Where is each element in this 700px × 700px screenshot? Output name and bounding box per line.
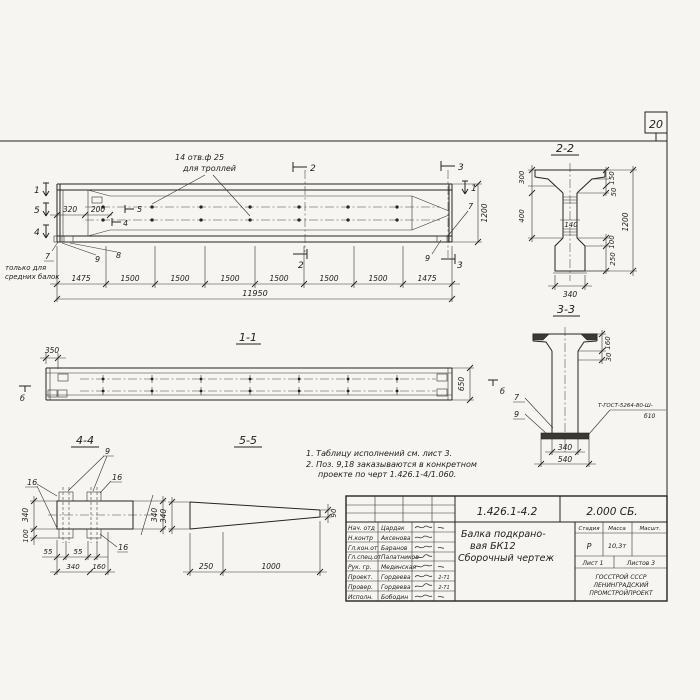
bearing-pad <box>64 236 73 242</box>
dim-140: 140 <box>564 221 578 229</box>
side-note-line2: средних балок <box>5 273 60 281</box>
marker-2-bottom: 2 <box>298 261 304 271</box>
trolley-holes <box>103 207 397 220</box>
drawing-title-line2: вая БК12 <box>470 541 516 552</box>
dim-340-33: 340 <box>558 443 573 452</box>
dim-200: 200 <box>91 205 106 214</box>
page-number: 20 <box>649 118 663 131</box>
dim-seg-7: 1500 <box>368 274 387 283</box>
dim-160: 160 <box>604 336 612 350</box>
sheets-total: Листов 3 <box>626 560 655 567</box>
cut-arrow-5-left: 5 <box>34 203 49 216</box>
dim-350: 350 <box>45 346 60 355</box>
dim-320: 320 <box>63 205 78 214</box>
staff-name-5: Мединская <box>381 564 416 571</box>
dim-250-55: 250 <box>199 562 214 571</box>
dim-seg-1: 1475 <box>71 274 90 283</box>
dim-400: 400 <box>518 209 526 223</box>
cut-label-5-inner: 5 <box>137 205 142 214</box>
cut-arrow-1-left: 1 <box>34 183 49 196</box>
note-line-2: 2. Поз. 9,18 заказываются в конкретном <box>306 460 477 469</box>
pos-16-left: 16 <box>27 478 37 487</box>
flange-bearing-mark <box>581 334 597 340</box>
cut-arrow-4-left: 4 <box>34 225 49 238</box>
pos-9-right: 9 <box>425 254 430 263</box>
staff-date-6: 2-71 <box>438 575 449 581</box>
marker-b-left: б <box>20 394 25 403</box>
dim-1200-section: 1200 <box>621 212 630 231</box>
drawing-title-line1: Балка подкрано- <box>461 529 546 540</box>
dim-total: 11950 <box>242 289 267 298</box>
note-line-3: проекте по черт 1.426.1-4/1.060. <box>318 470 456 479</box>
cut-label-1: 1 <box>34 186 40 196</box>
dim-340-bottom: 340 <box>66 563 80 571</box>
dim-540: 540 <box>558 455 573 464</box>
dim-340-left: 340 <box>21 508 30 523</box>
cut-arrow-1-right: 1 <box>462 181 477 194</box>
dim-1000: 1000 <box>261 562 280 571</box>
dim-300: 300 <box>518 170 526 184</box>
dim-340-right: 340 <box>150 508 159 523</box>
mass-header: Масса <box>608 526 626 532</box>
notes: 1. Таблицу исполнений см. лист 3. 2. Поз… <box>306 449 477 479</box>
section-2-2-title: 2-2 <box>556 142 574 155</box>
stage-header: Стадия <box>578 526 600 532</box>
dim-250: 250 <box>609 252 617 266</box>
staff-name-2: Аксенова <box>380 535 411 542</box>
hole-note-line2: для троллей <box>182 164 236 173</box>
doc-code: 2.000 СБ. <box>586 506 637 518</box>
staff-name-3: Баранов <box>381 545 408 552</box>
dim-650: 650 <box>457 377 466 392</box>
note-line-1: 1. Таблицу исполнений см. лист 3. <box>306 449 452 458</box>
bearing-pad <box>54 236 62 242</box>
staff-name-7: Гордеева <box>381 584 411 591</box>
dim-55-a: 55 <box>44 548 53 556</box>
section-2-2: 2-2 300 400 150 50 100 250 1200 140 340 <box>518 142 637 299</box>
staff-name-1: Цардак <box>381 525 405 532</box>
pos-8: 8 <box>116 251 121 260</box>
scale-header: Масшт. <box>639 526 660 532</box>
dim-seg-2: 1500 <box>120 274 139 283</box>
section-5-5-title: 5-5 <box>239 434 257 447</box>
marker-b-right: б <box>500 387 505 396</box>
weld-note-line2: б10 <box>644 413 656 420</box>
pos-9: 9 <box>95 255 100 264</box>
marker-3-bottom: 3 <box>457 261 463 271</box>
drawing-sheet: 20 14 отв.ф 25 для троллей 1 5 <box>0 0 700 700</box>
dim-55-b: 55 <box>74 548 83 556</box>
staff-name-6: Гордеева <box>381 574 411 581</box>
staff-role-3: Гл.кон.от <box>348 545 378 552</box>
dim-30: 30 <box>605 352 613 361</box>
staff-date-7: 2-71 <box>438 585 449 591</box>
dim-seg-4: 1500 <box>220 274 239 283</box>
dim-seg-8: 1475 <box>417 274 436 283</box>
org-line2: ЛЕНИНГРАДСКИЙ <box>593 582 650 589</box>
section-3-3-title: 3-3 <box>557 303 575 316</box>
dim-1200-elevation: 1200 <box>480 203 489 222</box>
dim-100-44: 100 <box>22 529 30 543</box>
sheet-no: Лист 1 <box>582 560 604 567</box>
drawing-title-line3: Сборочный чертеж <box>458 553 555 564</box>
staff-name-8: Бободин <box>381 594 408 601</box>
side-note-line1: только для <box>5 264 46 272</box>
dim-340-22: 340 <box>563 290 578 299</box>
dim-160-44: 160 <box>92 563 106 571</box>
title-block: 1.426.1-4.2 2.000 СБ. Балка подкрано- ва… <box>346 496 667 601</box>
section-1-1: 1-1 350 650 б б <box>19 331 505 403</box>
cut-label-5: 5 <box>34 206 40 216</box>
staff-role-8: Исполн. <box>348 594 373 601</box>
staff-role-1: Нач. отд <box>348 525 375 532</box>
org-line1: ГОССТРОЙ СССР <box>595 574 646 581</box>
pos-16-bottom: 16 <box>118 543 128 552</box>
section-3-3: 3-3 7 9 Т-ГОСТ-5264-80-Ш- б10 160 30 340… <box>513 303 666 467</box>
pos-7-right: 7 <box>468 202 474 211</box>
marker-3-top: 3 <box>458 163 464 173</box>
section-4-4: 4-4 9 16 16 16 340 100 340 55 55 340 160 <box>21 434 166 575</box>
elevation-view: 14 отв.ф 25 для троллей 1 5 4 1 5 4 320 … <box>5 153 489 302</box>
staff-role-2: Н.контр <box>348 535 373 542</box>
staff-name-4: Палатников <box>381 554 419 561</box>
sheet-frame: 20 <box>0 112 667 601</box>
dim-340-55: 340 <box>159 509 168 524</box>
cut-label-4: 4 <box>34 228 40 238</box>
dim-150: 150 <box>608 171 616 185</box>
dim-100: 100 <box>608 235 616 249</box>
staff-role-5: Рук. гр. <box>348 564 372 571</box>
marker-2-top: 2 <box>310 164 316 174</box>
bearing-pad <box>437 236 447 242</box>
pos-16-right: 16 <box>112 473 122 482</box>
staff-role-4: Гл.спец.от <box>348 554 382 561</box>
section-1-1-title: 1-1 <box>239 331 257 344</box>
hole-note-line1: 14 отв.ф 25 <box>175 153 224 162</box>
section-4-4-title: 4-4 <box>76 434 94 447</box>
dim-seg-6: 1500 <box>319 274 338 283</box>
org-line3: ПРОМСТРОЙПРОЕКТ <box>589 590 654 597</box>
doc-number: 1.426.1-4.2 <box>477 506 538 518</box>
dim-seg-3: 1500 <box>170 274 189 283</box>
stage-value: Р <box>587 542 592 551</box>
dim-90: 90 <box>330 508 338 517</box>
blueprint-canvas: 20 14 отв.ф 25 для троллей 1 5 <box>0 0 700 700</box>
pos-9-44: 9 <box>105 447 110 456</box>
cut-label-4-inner: 4 <box>123 219 128 228</box>
pos-9-33: 9 <box>514 410 519 419</box>
pos-7-33: 7 <box>514 393 520 402</box>
pos-7: 7 <box>45 252 51 261</box>
staff-role-7: Провер. <box>348 584 373 591</box>
dim-50: 50 <box>610 187 618 196</box>
staff-role-6: Проект. <box>348 574 373 581</box>
sole-plate <box>541 433 589 439</box>
dim-seg-5: 1500 <box>269 274 288 283</box>
weld-note-line1: Т-ГОСТ-5264-80-Ш- <box>598 403 653 409</box>
mass-value: 10,3т <box>608 542 626 550</box>
flange-bearing-mark <box>533 334 549 340</box>
